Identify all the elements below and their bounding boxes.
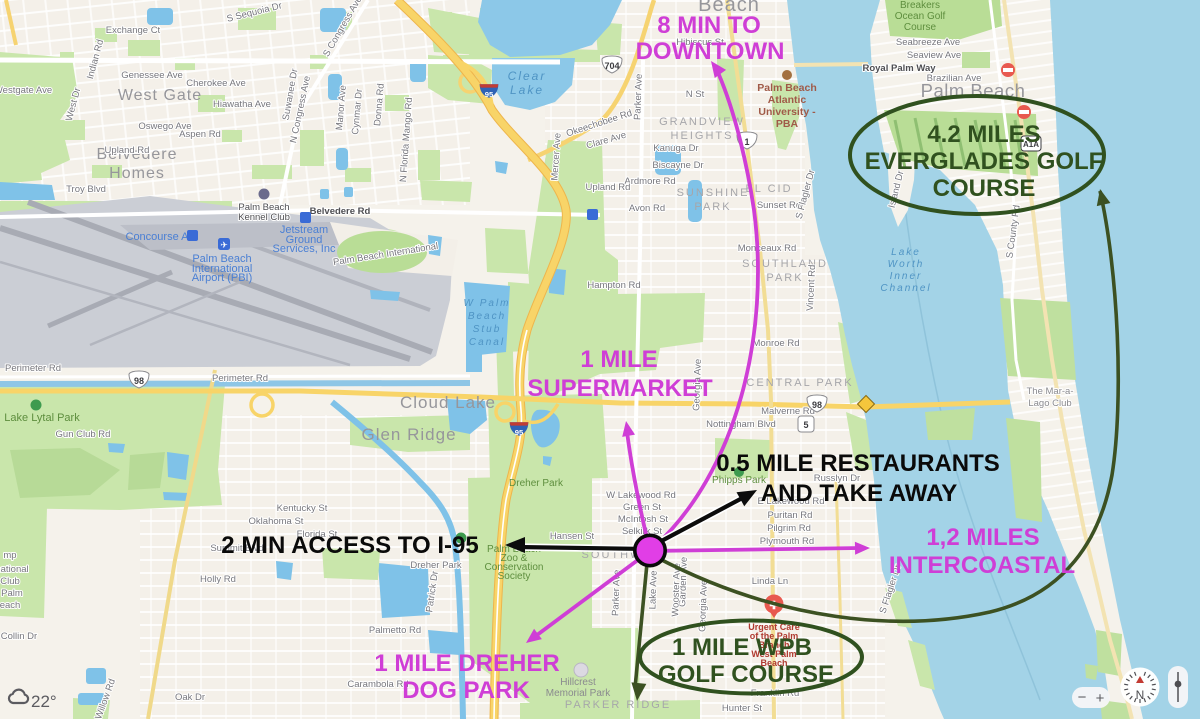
svg-text:Seabreeze Ave: Seabreeze Ave	[896, 37, 960, 48]
svg-text:Lake Ave: Lake Ave	[647, 570, 659, 609]
svg-text:GOLF COURSE: GOLF COURSE	[658, 661, 834, 688]
svg-text:PARKER RIDGE: PARKER RIDGE	[565, 699, 671, 711]
svg-text:national: national	[0, 564, 29, 575]
svg-text:Hansen St: Hansen St	[550, 531, 595, 542]
svg-text:−: −	[1078, 689, 1087, 706]
svg-text:Genessee Ave: Genessee Ave	[121, 70, 183, 81]
svg-text:Carambola Rd: Carambola Rd	[347, 679, 408, 690]
svg-text:Exchange Ct: Exchange Ct	[106, 25, 161, 36]
svg-text:Palm Beach: Palm Beach	[757, 82, 817, 94]
svg-text:Ocean Golf: Ocean Golf	[895, 11, 946, 22]
svg-text:Hampton Rd: Hampton Rd	[587, 280, 640, 291]
svg-text:Gun Club Rd: Gun Club Rd	[56, 429, 111, 440]
svg-text:Royal Palm Way: Royal Palm Way	[862, 63, 936, 74]
svg-text:Cloud Lake: Cloud Lake	[400, 393, 496, 412]
svg-text:✈: ✈	[220, 240, 228, 250]
svg-text:Biscayne Dr: Biscayne Dr	[652, 160, 703, 171]
svg-text:Monroe Rd: Monroe Rd	[753, 338, 800, 349]
svg-text:EVERGLADES GOLF: EVERGLADES GOLF	[865, 148, 1104, 175]
svg-text:1: 1	[744, 137, 749, 147]
svg-text:N: N	[1136, 688, 1145, 702]
svg-text:Society: Society	[498, 571, 531, 582]
svg-text:Collin Dr: Collin Dr	[1, 631, 37, 642]
svg-text:N St: N St	[686, 89, 705, 100]
svg-text:Pilgrim Rd: Pilgrim Rd	[767, 523, 811, 534]
svg-text:Kentucky St: Kentucky St	[277, 503, 328, 514]
svg-text:Homes: Homes	[109, 165, 165, 182]
svg-text:98: 98	[812, 400, 822, 410]
svg-text:Oklahoma St: Oklahoma St	[249, 516, 304, 527]
svg-text:DOG PARK: DOG PARK	[402, 677, 530, 704]
svg-text:Brazilian Ave: Brazilian Ave	[927, 73, 982, 84]
svg-text:Channel: Channel	[880, 283, 931, 294]
svg-text:each: each	[0, 600, 20, 611]
svg-text:W Lakewood Rd: W Lakewood Rd	[606, 490, 676, 501]
svg-text:W Palm: W Palm	[464, 298, 511, 309]
svg-text:HEIGHTS: HEIGHTS	[671, 130, 734, 142]
svg-text:Westgate Ave: Westgate Ave	[0, 85, 52, 96]
svg-text:Cherokee Ave: Cherokee Ave	[186, 78, 246, 89]
svg-text:Linda Ln: Linda Ln	[752, 576, 788, 587]
svg-text:Hillcrest: Hillcrest	[560, 677, 596, 688]
svg-text:Hiawatha Ave: Hiawatha Ave	[213, 99, 271, 110]
svg-text:CENTRAL PARK: CENTRAL PARK	[746, 377, 853, 389]
svg-text:mp: mp	[3, 550, 16, 561]
svg-text:SUNSHINE: SUNSHINE	[677, 187, 750, 199]
svg-text:PBA: PBA	[776, 118, 799, 130]
svg-text:Monceaux Rd: Monceaux Rd	[738, 243, 797, 254]
svg-text:Lake: Lake	[510, 83, 544, 97]
svg-text:Inner: Inner	[890, 271, 923, 282]
svg-text:Perimeter Rd: Perimeter Rd	[5, 363, 61, 374]
svg-text:22°: 22°	[31, 692, 57, 711]
svg-text:Malverne Rd: Malverne Rd	[761, 406, 815, 417]
svg-text:Holly Rd: Holly Rd	[200, 574, 236, 585]
svg-text:Lake Lytal Park: Lake Lytal Park	[4, 412, 80, 424]
svg-text:Club: Club	[0, 576, 20, 587]
svg-text:SUPERMARKET: SUPERMARKET	[527, 375, 713, 402]
svg-text:Concourse A: Concourse A	[126, 231, 190, 243]
svg-text:+: +	[1096, 690, 1105, 707]
svg-text:Nottingham Blvd: Nottingham Blvd	[706, 419, 776, 430]
svg-text:Ardmore Rd: Ardmore Rd	[624, 176, 675, 187]
svg-text:Glen Ridge: Glen Ridge	[361, 425, 456, 444]
svg-text:8 MIN TO: 8 MIN TO	[657, 12, 761, 39]
svg-text:Clear: Clear	[508, 69, 547, 83]
svg-text:Dreher Park: Dreher Park	[509, 478, 564, 489]
svg-text:2 MIN ACCESS TO I-95: 2 MIN ACCESS TO I-95	[221, 532, 478, 559]
svg-text:1 MILE: 1 MILE	[580, 346, 657, 373]
svg-text:Worth: Worth	[888, 259, 925, 270]
svg-text:West Gate: West Gate	[118, 87, 202, 104]
svg-text:Perimeter Rd: Perimeter Rd	[212, 373, 268, 384]
svg-text:DOWNTOWN: DOWNTOWN	[636, 38, 785, 65]
svg-text:0.5 MILE RESTAURANTS: 0.5 MILE RESTAURANTS	[716, 450, 1000, 477]
svg-text:Puritan Rd: Puritan Rd	[768, 510, 813, 521]
svg-text:GRANDVIEW: GRANDVIEW	[659, 116, 745, 128]
svg-text:5: 5	[803, 420, 808, 430]
svg-text:Plymouth Rd: Plymouth Rd	[760, 536, 814, 547]
svg-text:Canal: Canal	[469, 337, 505, 348]
svg-text:Atlantic: Atlantic	[768, 94, 807, 106]
svg-text:Palmetto Rd: Palmetto Rd	[369, 625, 421, 636]
svg-text:Palm: Palm	[1, 588, 23, 599]
svg-text:704: 704	[604, 61, 619, 71]
svg-text:98: 98	[134, 376, 144, 386]
svg-text:1 MILE WPB: 1 MILE WPB	[672, 634, 812, 661]
svg-text:Breakers: Breakers	[900, 0, 940, 11]
svg-text:Services, Inc: Services, Inc	[273, 243, 336, 255]
svg-text:1 MILE DREHER: 1 MILE DREHER	[374, 650, 559, 677]
svg-text:Oak Dr: Oak Dr	[175, 692, 205, 703]
svg-text:Parker Ave: Parker Ave	[632, 74, 645, 121]
svg-text:INTERCOASTAL: INTERCOASTAL	[889, 552, 1075, 579]
svg-text:Aspen Rd: Aspen Rd	[179, 129, 221, 140]
svg-text:Course: Course	[904, 22, 937, 33]
svg-text:Upland Rd: Upland Rd	[586, 182, 631, 193]
svg-text:Belvedere Rd: Belvedere Rd	[310, 206, 371, 217]
svg-text:Memorial Park: Memorial Park	[546, 688, 611, 699]
svg-text:Kennel Club: Kennel Club	[238, 212, 290, 223]
svg-text:Airport (PBI): Airport (PBI)	[192, 272, 253, 284]
svg-text:University -: University -	[758, 106, 816, 118]
svg-text:PARK: PARK	[694, 201, 731, 213]
svg-text:PARK: PARK	[766, 272, 803, 284]
svg-text:95: 95	[515, 428, 524, 437]
svg-text:1,2 MILES: 1,2 MILES	[926, 524, 1039, 551]
svg-text:The Mar-a-: The Mar-a-	[1027, 386, 1074, 397]
svg-text:Lago Club: Lago Club	[1028, 398, 1071, 409]
svg-text:Kanuga Dr: Kanuga Dr	[653, 143, 698, 154]
svg-text:Seaview Ave: Seaview Ave	[907, 50, 961, 61]
svg-text:Lake: Lake	[891, 247, 921, 258]
svg-text:Hunter St: Hunter St	[722, 703, 762, 714]
svg-text:Sunset Rd: Sunset Rd	[757, 200, 801, 211]
svg-text:Dreher Park: Dreher Park	[410, 560, 461, 571]
svg-text:Stub: Stub	[473, 324, 502, 335]
svg-text:AND TAKE AWAY: AND TAKE AWAY	[761, 480, 957, 507]
svg-text:95: 95	[485, 90, 494, 99]
svg-text:Beach: Beach	[468, 311, 506, 322]
svg-text:Upland Rd: Upland Rd	[105, 145, 150, 156]
svg-text:COURSE: COURSE	[933, 175, 1036, 202]
svg-text:Troy Blvd: Troy Blvd	[66, 184, 106, 195]
svg-text:Avon Rd: Avon Rd	[629, 203, 665, 214]
svg-text:4.2 MILES: 4.2 MILES	[927, 121, 1040, 148]
